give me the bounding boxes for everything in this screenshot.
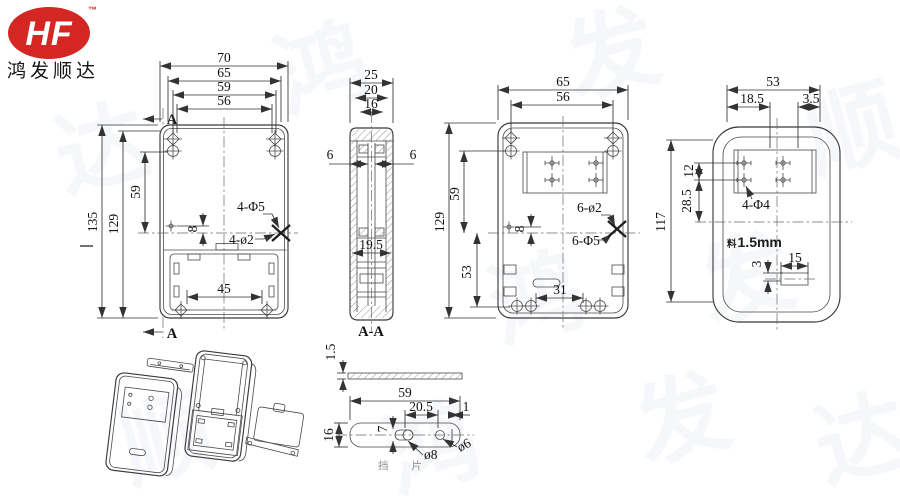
dim-7: 7 <box>375 425 390 432</box>
screw-boss <box>258 301 276 319</box>
dim-117: 117 <box>653 212 668 232</box>
dim-19-5: 19.5 <box>359 237 383 252</box>
dim-129: 129 <box>106 214 121 235</box>
iso-battery-cover <box>245 400 305 457</box>
label-4d4: 4-Φ4 <box>742 197 770 212</box>
pilot-hole <box>166 221 177 232</box>
screw-hole <box>267 143 284 160</box>
section-title: A-A <box>358 324 384 340</box>
dim-56: 56 <box>217 93 231 108</box>
logo-trademark: ™ <box>88 5 97 15</box>
watermark-char: 顺 <box>109 379 224 500</box>
dim-59-left: 59 <box>128 185 143 199</box>
technical-drawing: 达 鸿 发 顺 鸿 发 顺 鸿 发 达 HF ™ 鸿发顺达 <box>0 0 900 500</box>
dim-53: 53 <box>766 74 780 89</box>
dim-1-5: 1.5 <box>323 343 338 360</box>
dim-8: 8 <box>512 225 527 232</box>
dim-1: 1 <box>463 399 470 414</box>
dim-28-5: 28.5 <box>679 189 694 213</box>
dim-65: 65 <box>556 74 570 89</box>
thickness-prefix: 料 <box>727 238 737 250</box>
screw-hole <box>503 143 520 160</box>
watermark-char: 达 <box>804 379 900 500</box>
dim-18-5: 18.5 <box>740 91 764 106</box>
watermark-char: 鸿 <box>264 9 379 131</box>
dim-6-left: 6 <box>327 147 334 162</box>
label-6d2: 6-ø2 <box>577 200 602 215</box>
dim-3-5: 3.5 <box>803 91 820 106</box>
dim-16: 16 <box>321 428 336 442</box>
drawing-sheet: 达 鸿 发 顺 鸿 发 顺 鸿 发 达 HF ™ 鸿发顺达 <box>0 0 900 500</box>
dim-6-right: 6 <box>410 147 417 162</box>
watermark-char: 顺 <box>794 69 900 191</box>
logo-text: HF <box>25 15 73 53</box>
label-4d5: 4-Φ5 <box>237 199 265 214</box>
dim-16: 16 <box>364 96 378 111</box>
dim-65: 65 <box>217 65 231 80</box>
screw-hole <box>165 143 182 160</box>
mount-hole <box>589 156 603 170</box>
label-6d5: 6-Φ5 <box>572 233 600 248</box>
company-name: 鸿发顺达 <box>7 60 99 82</box>
iso-baffle-strip <box>147 358 194 372</box>
dim-20: 20 <box>364 82 378 97</box>
watermark-char: 发 <box>624 359 739 481</box>
screw-hole <box>592 298 609 315</box>
company-logo: HF ™ 鸿发顺达 <box>7 5 99 82</box>
dim-8: 8 <box>185 225 200 232</box>
dim-15: 15 <box>788 250 802 265</box>
mount-hole <box>545 173 559 187</box>
dim-31: 31 <box>553 282 567 297</box>
dim-70: 70 <box>217 50 231 65</box>
dim-56: 56 <box>556 89 570 104</box>
window-recess <box>523 152 607 193</box>
dim-3: 3 <box>749 260 764 267</box>
mount-hole <box>776 156 790 170</box>
dim-129: 129 <box>432 212 447 233</box>
dim-25: 25 <box>364 67 378 82</box>
watermark-char: 发 <box>554 0 669 116</box>
dim-59-top: 59 <box>217 79 231 94</box>
dim-20-5: 20.5 <box>409 399 433 414</box>
watermark-char: 鸿 <box>479 239 594 361</box>
mount-hole <box>545 156 559 170</box>
mount-hole <box>776 173 790 187</box>
section-mark-bottom: A <box>167 326 178 342</box>
dim-53: 53 <box>459 265 474 279</box>
dim-135: 135 <box>85 212 100 233</box>
thickness-value: 1.5mm <box>738 234 782 250</box>
dim-12: 12 <box>681 164 696 178</box>
mount-hole <box>589 173 603 187</box>
part-name: 挡 片 <box>378 459 432 472</box>
label-4d2: 4-ø2 <box>229 232 254 247</box>
dim-45: 45 <box>217 281 231 296</box>
dim-59: 59 <box>398 385 412 400</box>
dim-59: 59 <box>447 187 462 201</box>
